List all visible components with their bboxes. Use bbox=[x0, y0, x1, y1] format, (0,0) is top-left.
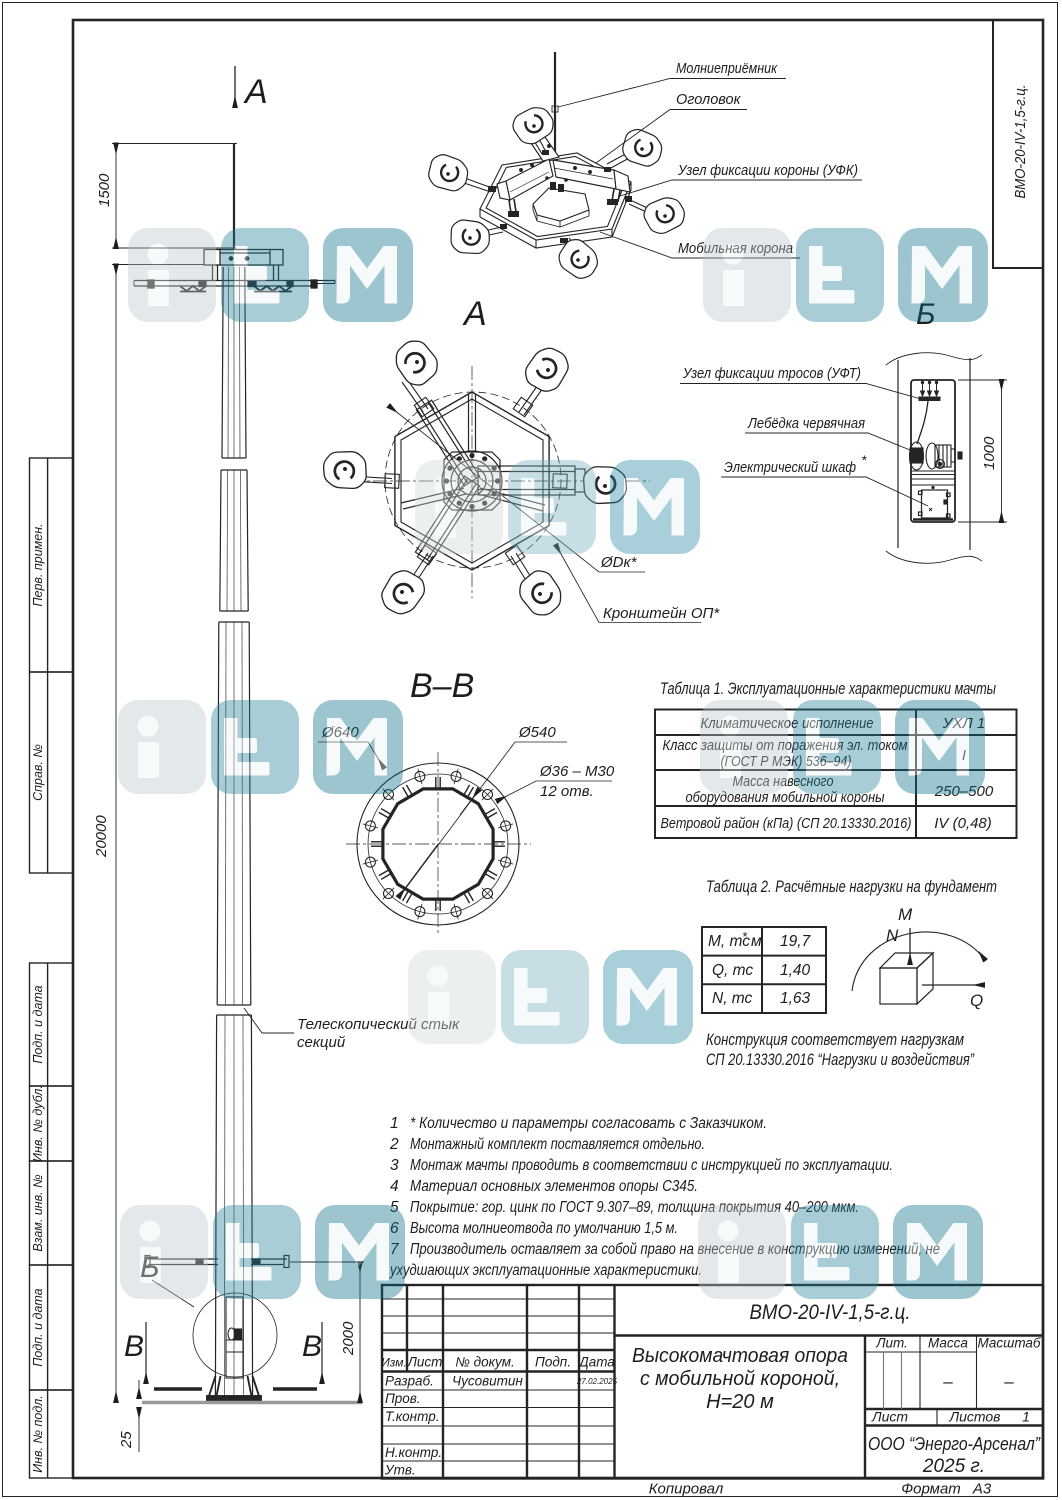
svg-text:секций: секций bbox=[297, 1034, 346, 1051]
svg-text:2000: 2000 bbox=[340, 1321, 357, 1356]
svg-text:Высота молниеотвода по умолчан: Высота молниеотвода по умолчанию 1,5 м. bbox=[410, 1220, 678, 1237]
svg-text:2: 2 bbox=[389, 1136, 399, 1153]
svg-text:Конструкция соответствует нагр: Конструкция соответствует нагрузкам bbox=[706, 1031, 964, 1049]
svg-text:Инв. № дубл.: Инв. № дубл. bbox=[31, 1085, 45, 1162]
svg-text:Листов: Листов bbox=[949, 1409, 1001, 1425]
svg-text:Таблица 1. Эксплуатационные ха: Таблица 1. Эксплуатационные характеристи… bbox=[660, 680, 996, 698]
svg-text:Пров.: Пров. bbox=[385, 1391, 421, 1406]
svg-text:N: N bbox=[886, 926, 899, 945]
svg-text:*: * bbox=[861, 452, 867, 468]
svg-text:Дата: Дата bbox=[577, 1355, 615, 1370]
svg-text:Высокомачтовая опора: Высокомачтовая опора bbox=[632, 1345, 848, 1367]
svg-text:Покрытие: гор. цинк по ГОСТ 9.: Покрытие: гор. цинк по ГОСТ 9.307–89, то… bbox=[410, 1199, 859, 1216]
svg-text:Монтажный комплект поставляетс: Монтажный комплект поставляется отдельно… bbox=[410, 1136, 705, 1153]
svg-text:N, тс: N, тс bbox=[712, 990, 753, 1007]
svg-text:–: – bbox=[1003, 1372, 1014, 1391]
svg-text:ухудшающих эксплуатационные ха: ухудшающих эксплуатационные характеристи… bbox=[389, 1262, 702, 1279]
svg-text:19,7: 19,7 bbox=[780, 933, 812, 950]
svg-text:А: А bbox=[243, 73, 268, 111]
svg-text:Ø540: Ø540 bbox=[518, 724, 556, 741]
svg-text:Утв.: Утв. bbox=[384, 1463, 416, 1478]
svg-text:Чусовитин: Чусовитин bbox=[452, 1374, 523, 1389]
svg-text:В: В bbox=[124, 1330, 144, 1363]
svg-text:А: А bbox=[462, 295, 487, 333]
svg-text:Подп. и дата: Подп. и дата bbox=[31, 1288, 45, 1366]
svg-text:20000: 20000 bbox=[93, 815, 110, 858]
svg-text:В: В bbox=[302, 1330, 322, 1363]
svg-text:Н.контр.: Н.контр. bbox=[385, 1445, 442, 1460]
svg-text:1,63: 1,63 bbox=[780, 990, 811, 1007]
svg-text:ВМО-20-IV-1,5-г.ц.: ВМО-20-IV-1,5-г.ц. bbox=[750, 1301, 911, 1324]
svg-text:Взам. инв. №: Взам. инв. № bbox=[31, 1174, 45, 1252]
svg-text:Масса: Масса bbox=[928, 1336, 968, 1351]
svg-text:Справ. №: Справ. № bbox=[31, 744, 45, 801]
svg-text:Q, тс: Q, тс bbox=[712, 962, 753, 979]
svg-text:ØDк*: ØDк* bbox=[600, 554, 638, 571]
svg-text:ВМО-20-IV-1,5-г.ц.: ВМО-20-IV-1,5-г.ц. bbox=[1013, 85, 1029, 199]
svg-text:Масштаб: Масштаб bbox=[977, 1336, 1040, 1351]
svg-text:Кронштейн ОП*: Кронштейн ОП* bbox=[603, 605, 720, 622]
svg-text:Лист: Лист bbox=[407, 1355, 443, 1370]
svg-text:1000: 1000 bbox=[981, 436, 998, 470]
svg-text:Ветровой район (кПа) (СП 20.13: Ветровой район (кПа) (СП 20.13330.2016) bbox=[661, 815, 912, 832]
svg-text:* Количество и параметры согла: * Количество и параметры согласовать с З… bbox=[410, 1115, 767, 1132]
svg-text:Таблица 2. Расчётные нагрузки: Таблица 2. Расчётные нагрузки на фундаме… bbox=[706, 878, 997, 896]
svg-text:с мобильной короной,: с мобильной короной, bbox=[640, 1368, 840, 1390]
svg-text:1500: 1500 bbox=[96, 173, 113, 207]
svg-text:3: 3 bbox=[390, 1157, 399, 1174]
svg-text:Q: Q bbox=[970, 991, 983, 1010]
svg-text:Подп. и дата: Подп. и дата bbox=[31, 985, 45, 1063]
svg-text:Ø36 – М30: Ø36 – М30 bbox=[539, 763, 615, 780]
svg-text:Копировал: Копировал bbox=[649, 1481, 724, 1498]
svg-text:25: 25 bbox=[118, 1431, 135, 1449]
svg-text:Лит.: Лит. bbox=[875, 1336, 908, 1351]
svg-text:В–В: В–В bbox=[410, 667, 474, 705]
svg-text:4: 4 bbox=[390, 1178, 399, 1195]
svg-text:Молниеприёмник: Молниеприёмник bbox=[676, 61, 778, 77]
svg-text:1: 1 bbox=[390, 1115, 399, 1132]
svg-text:12 отв.: 12 отв. bbox=[540, 783, 594, 800]
svg-text:1,40: 1,40 bbox=[780, 962, 811, 979]
svg-text:Электрический шкаф: Электрический шкаф bbox=[724, 459, 856, 476]
svg-text:Инв. № подл.: Инв. № подл. bbox=[31, 1395, 45, 1473]
svg-text:Узел фиксации короны (УФК): Узел фиксации короны (УФК) bbox=[677, 163, 858, 179]
svg-text:IV (0,48): IV (0,48) bbox=[934, 815, 992, 832]
svg-text:27.02.2025: 27.02.2025 bbox=[576, 1377, 618, 1386]
svg-text:Разраб.: Разраб. bbox=[385, 1374, 434, 1389]
svg-text:Узел фиксации тросов (УФТ): Узел фиксации тросов (УФТ) bbox=[682, 365, 861, 382]
svg-text:ООО “Энерго-Арсенал”: ООО “Энерго-Арсенал” bbox=[868, 1434, 1041, 1454]
svg-text:1: 1 bbox=[1022, 1409, 1030, 1425]
svg-text:М: М bbox=[898, 905, 913, 924]
svg-text:Лист: Лист bbox=[871, 1409, 908, 1425]
svg-text:Оголовок: Оголовок bbox=[676, 92, 742, 108]
svg-text:Материал основных элементов оп: Материал основных элементов опоры С345. bbox=[410, 1178, 698, 1195]
svg-text:2025 г.: 2025 г. bbox=[922, 1456, 985, 1477]
svg-text:Изм.: Изм. bbox=[381, 1356, 407, 1370]
svg-text:–: – bbox=[942, 1372, 953, 1391]
svg-text:Формат: Формат bbox=[901, 1481, 961, 1498]
svg-text:Перв. примен.: Перв. примен. bbox=[31, 523, 45, 606]
svg-text:Лебёдка червячная: Лебёдка червячная bbox=[747, 415, 865, 432]
svg-text:м: м bbox=[751, 933, 762, 950]
svg-text:СП 20.13330.2016 “Нагрузки и в: СП 20.13330.2016 “Нагрузки и воздействия… bbox=[706, 1051, 975, 1069]
svg-text:А3: А3 bbox=[972, 1481, 992, 1498]
svg-text:Т.контр.: Т.контр. bbox=[385, 1409, 439, 1424]
svg-text:Н=20 м: Н=20 м bbox=[706, 1391, 774, 1413]
svg-text:Монтаж мачты проводить в соотв: Монтаж мачты проводить в соответствии с … bbox=[410, 1157, 893, 1174]
svg-text:Подп.: Подп. bbox=[535, 1355, 571, 1370]
svg-text:№ докум.: № докум. bbox=[455, 1355, 514, 1370]
